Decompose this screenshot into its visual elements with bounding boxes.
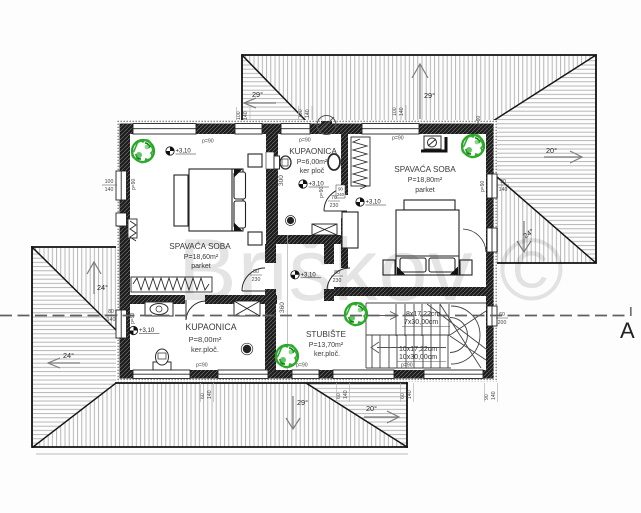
svg-text:7x30,00cm: 7x30,00cm — [404, 319, 438, 326]
svg-text:ker ploč: ker ploč — [300, 168, 325, 175]
svg-text:100: 100 — [105, 179, 114, 185]
svg-text:140: 140 — [407, 390, 413, 399]
svg-text:20°: 20° — [546, 146, 557, 155]
svg-text:p=90: p=90 — [392, 136, 404, 142]
svg-text:p=90: p=90 — [202, 139, 214, 145]
svg-text:90: 90 — [338, 187, 343, 192]
svg-text:70: 70 — [331, 195, 337, 201]
svg-text:60: 60 — [200, 393, 206, 399]
svg-text:140: 140 — [207, 390, 213, 399]
svg-text:p=90: p=90 — [296, 363, 308, 369]
svg-text:29°: 29° — [252, 90, 263, 99]
svg-text:Briškov ©: Briškov © — [178, 220, 565, 319]
svg-text:p=90: p=90 — [401, 363, 413, 369]
svg-text:p=90: p=90 — [131, 179, 137, 190]
svg-text:ker.ploč.: ker.ploč. — [191, 345, 219, 354]
svg-text:140: 140 — [305, 109, 311, 118]
svg-text:P=18,80m²: P=18,80m² — [408, 177, 443, 184]
svg-text:P=8,00m²: P=8,00m² — [189, 335, 222, 344]
svg-text:100: 100 — [298, 109, 304, 118]
svg-text:300: 300 — [278, 175, 285, 186]
svg-text:24°: 24° — [63, 351, 74, 360]
svg-text:20°: 20° — [366, 404, 377, 413]
svg-text:KUPAONICA: KUPAONICA — [289, 147, 337, 156]
svg-text:60: 60 — [400, 393, 406, 399]
svg-text:90: 90 — [500, 179, 506, 185]
svg-text:90: 90 — [484, 394, 490, 400]
svg-text:230: 230 — [330, 203, 339, 209]
svg-text:A: A — [620, 318, 635, 343]
svg-text:p=90: p=90 — [480, 181, 486, 192]
svg-text:P=13,70m²: P=13,70m² — [309, 342, 344, 349]
svg-text:ker.ploč.: ker.ploč. — [314, 351, 340, 358]
svg-text:140: 140 — [343, 390, 349, 399]
svg-text:p=90: p=90 — [299, 138, 311, 144]
svg-text:140: 140 — [499, 187, 508, 193]
svg-text:10x30,00cm: 10x30,00cm — [399, 354, 437, 361]
svg-text:140: 140 — [399, 107, 405, 116]
svg-text:10x17,22cm: 10x17,22cm — [399, 346, 437, 353]
svg-text:200: 200 — [498, 320, 507, 326]
svg-text:140: 140 — [105, 187, 114, 193]
svg-text:140: 140 — [491, 391, 497, 400]
svg-text:p=90: p=90 — [196, 363, 208, 369]
svg-text:100: 100 — [236, 111, 242, 120]
svg-text:140: 140 — [107, 317, 116, 323]
svg-text:29°: 29° — [424, 91, 435, 100]
svg-text:240: 240 — [337, 192, 345, 197]
svg-text:29°: 29° — [297, 398, 308, 407]
svg-text:STUBIŠTE: STUBIŠTE — [306, 329, 347, 339]
svg-text:p=90: p=90 — [130, 313, 136, 324]
svg-text:140: 140 — [243, 111, 249, 120]
svg-text:60: 60 — [336, 393, 342, 399]
svg-text:+3,10: +3,10 — [176, 149, 192, 155]
svg-text:24°: 24° — [97, 283, 108, 292]
svg-text:80: 80 — [108, 309, 114, 315]
svg-text:parket: parket — [415, 187, 435, 194]
svg-text:KUPAONICA: KUPAONICA — [185, 322, 236, 332]
svg-text:p=90: p=90 — [319, 187, 325, 198]
svg-text:p=90: p=90 — [476, 116, 482, 127]
svg-text:100: 100 — [392, 107, 398, 116]
svg-text:SPAVAĆA SOBA: SPAVAĆA SOBA — [394, 164, 456, 174]
svg-text:P=6,00m²: P=6,00m² — [297, 159, 328, 166]
